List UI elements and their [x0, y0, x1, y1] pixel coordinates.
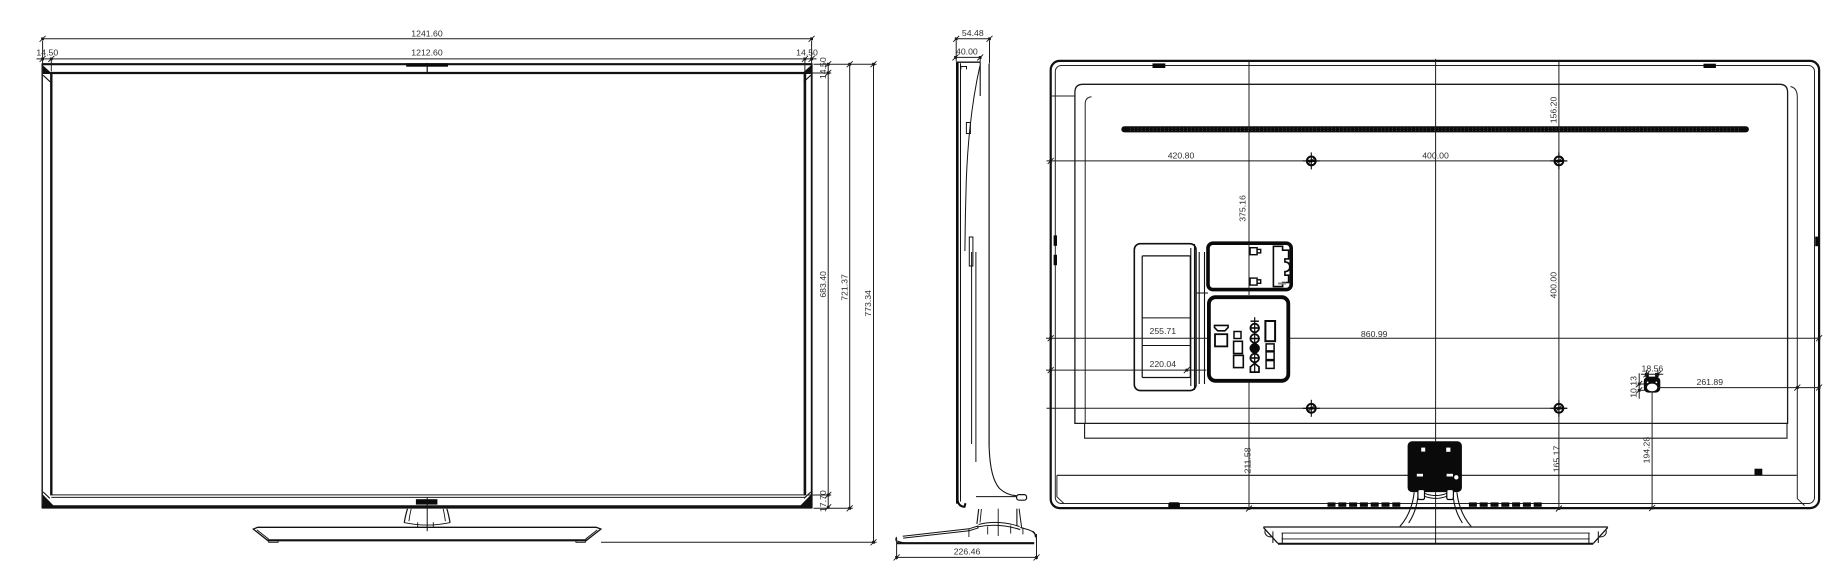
svg-text:156.20: 156.20: [1549, 97, 1559, 124]
svg-text:18.56: 18.56: [1642, 364, 1664, 374]
svg-text:17.70: 17.70: [818, 490, 828, 512]
svg-text:194.28: 194.28: [1642, 437, 1652, 464]
svg-text:773.34: 773.34: [863, 290, 873, 317]
svg-text:226.46: 226.46: [954, 546, 981, 556]
svg-text:1241.60: 1241.60: [411, 28, 443, 38]
svg-text:10.13: 10.13: [1628, 376, 1638, 398]
svg-text:721.37: 721.37: [839, 274, 849, 301]
svg-text:54.48: 54.48: [962, 28, 984, 38]
svg-text:683.40: 683.40: [818, 271, 828, 298]
svg-text:860.99: 860.99: [1361, 329, 1388, 339]
svg-text:165.17: 165.17: [1552, 446, 1562, 473]
svg-text:14.50: 14.50: [818, 57, 828, 79]
svg-text:40.00: 40.00: [956, 46, 978, 56]
svg-text:14.50: 14.50: [796, 47, 818, 57]
svg-text:400.00: 400.00: [1422, 150, 1449, 160]
svg-text:255.71: 255.71: [1150, 326, 1177, 336]
svg-text:211.58: 211.58: [1242, 447, 1252, 473]
svg-text:400.00: 400.00: [1549, 272, 1559, 299]
svg-text:220.04: 220.04: [1150, 359, 1177, 369]
svg-text:420.80: 420.80: [1168, 150, 1195, 160]
svg-text:261.89: 261.89: [1697, 377, 1724, 387]
svg-text:375.16: 375.16: [1238, 195, 1248, 222]
svg-text:14.50: 14.50: [36, 47, 58, 57]
svg-text:1212.60: 1212.60: [411, 48, 443, 58]
